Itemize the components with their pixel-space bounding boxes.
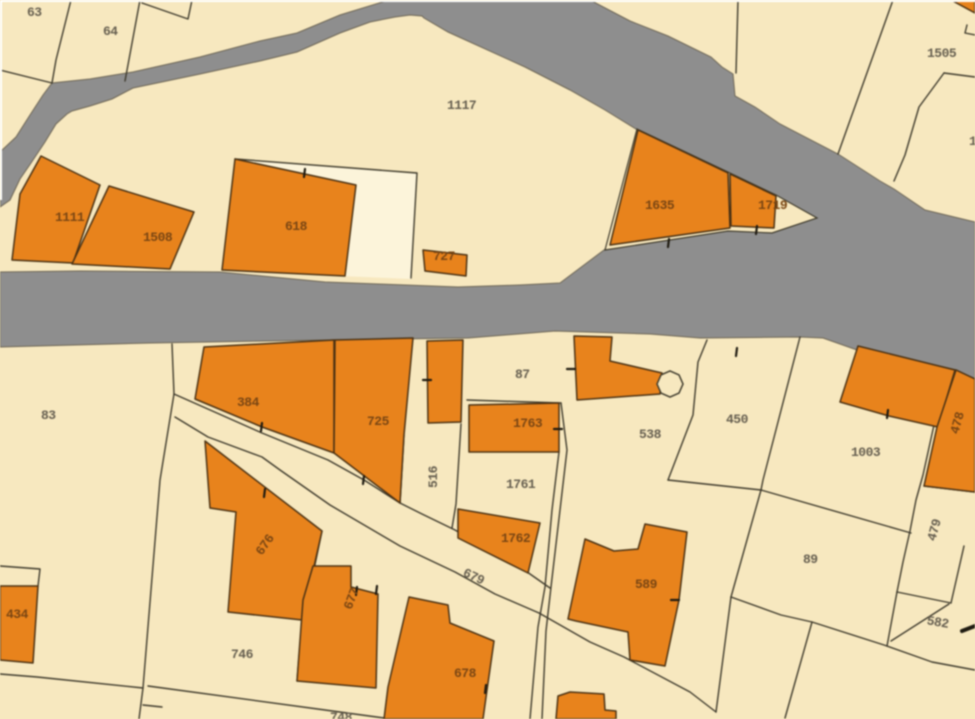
svg-text:516: 516 <box>426 465 441 488</box>
svg-text:1635: 1635 <box>645 198 675 213</box>
svg-text:63: 63 <box>27 5 42 20</box>
svg-text:434: 434 <box>6 607 29 622</box>
svg-text:450: 450 <box>726 412 749 427</box>
svg-text:83: 83 <box>41 408 56 423</box>
svg-text:538: 538 <box>639 427 662 442</box>
svg-text:87: 87 <box>515 367 530 382</box>
svg-text:1111: 1111 <box>55 210 85 225</box>
svg-text:1761: 1761 <box>506 477 536 492</box>
svg-text:1117: 1117 <box>447 98 476 113</box>
svg-text:1: 1 <box>969 134 975 149</box>
svg-text:748: 748 <box>330 710 353 719</box>
svg-text:746: 746 <box>231 647 254 662</box>
svg-text:1762: 1762 <box>501 531 531 546</box>
svg-text:618: 618 <box>285 219 308 234</box>
svg-text:727: 727 <box>433 249 455 264</box>
svg-text:384: 384 <box>237 395 260 410</box>
svg-text:1508: 1508 <box>143 230 173 245</box>
svg-text:1763: 1763 <box>513 416 543 431</box>
svg-text:89: 89 <box>803 552 818 567</box>
svg-text:1505: 1505 <box>927 46 957 61</box>
svg-text:64: 64 <box>103 24 118 39</box>
svg-text:725: 725 <box>367 414 390 429</box>
svg-text:1003: 1003 <box>851 445 881 460</box>
svg-text:589: 589 <box>635 577 658 592</box>
svg-text:678: 678 <box>454 666 477 681</box>
svg-text:1719: 1719 <box>758 198 788 213</box>
